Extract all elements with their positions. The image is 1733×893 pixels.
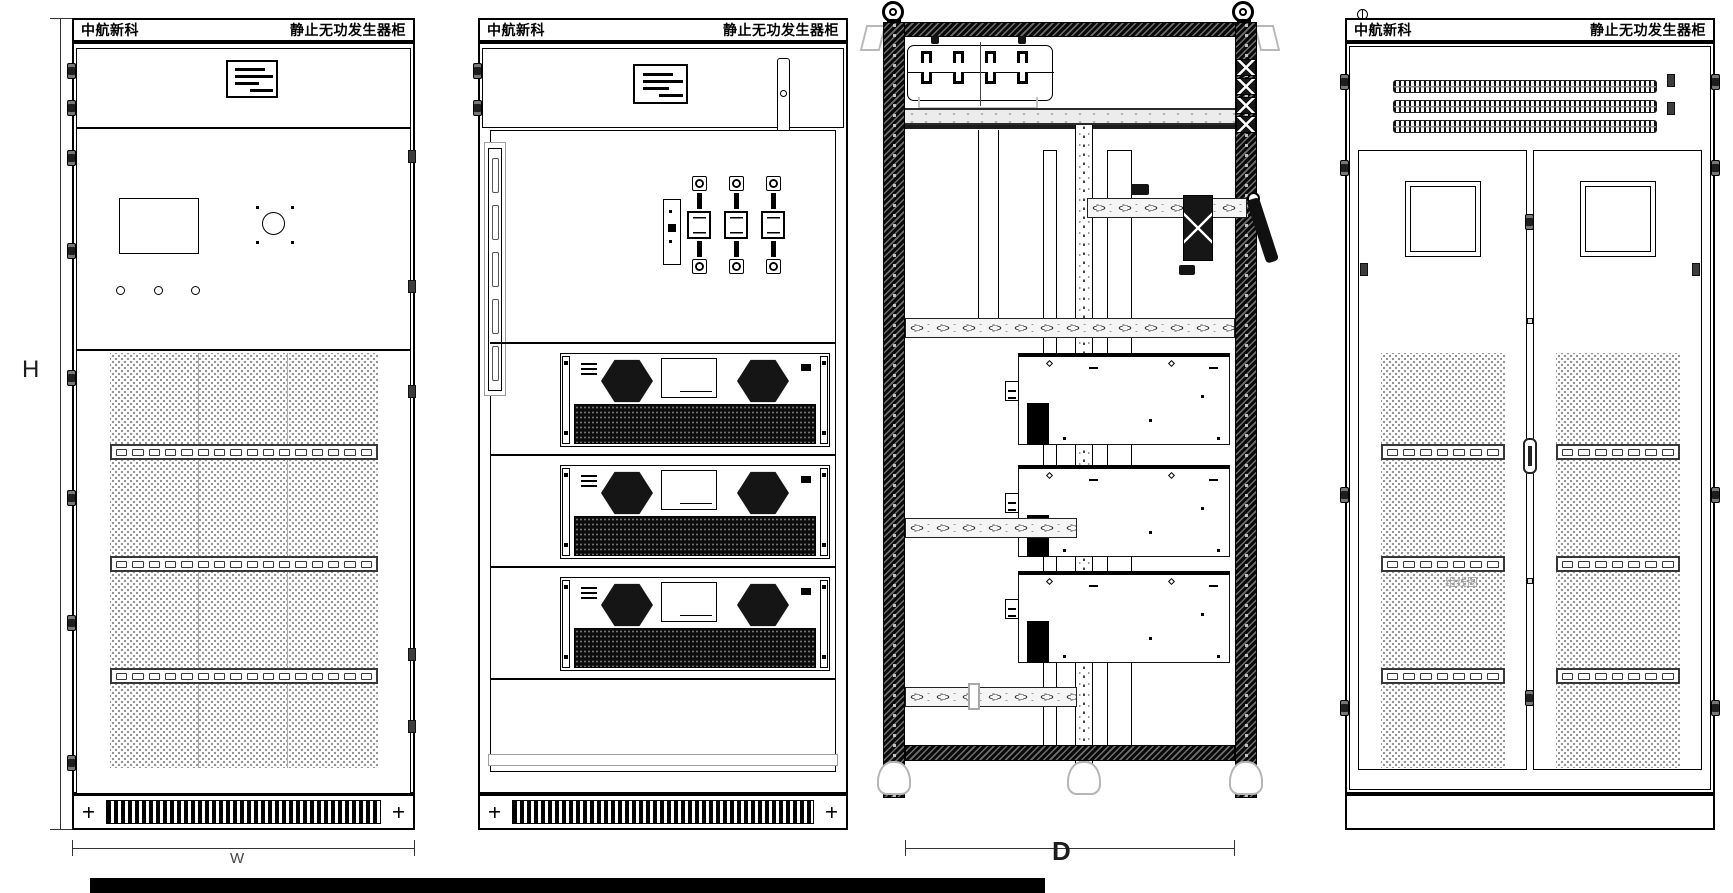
- perforated-panel: [1381, 460, 1505, 556]
- louver-slot: [1487, 561, 1499, 568]
- base-vent: [478, 794, 848, 830]
- louver-slot: [1470, 561, 1482, 568]
- view-rear: 中航新科 静止无功发生器柜: [1345, 18, 1715, 830]
- nameplate: [633, 64, 688, 104]
- breaker-pole: [722, 175, 750, 275]
- corner-gusset: [1254, 25, 1280, 51]
- louver-slot: [247, 449, 258, 456]
- view-front-open: 中航新科 静止无功发生器柜: [478, 18, 848, 830]
- busbar: [697, 241, 702, 257]
- perforated-panel: [1381, 684, 1505, 768]
- mark: [291, 206, 294, 209]
- breaker-terminal: [729, 176, 744, 191]
- center-hinge: [1525, 690, 1534, 706]
- side-module: [1018, 465, 1230, 557]
- side-module: [1018, 571, 1230, 663]
- mark: [1168, 578, 1175, 585]
- center-hinge: [1525, 214, 1534, 230]
- breaker-body: [724, 211, 748, 239]
- module-connector: [1005, 381, 1019, 401]
- door-hinge: [67, 755, 76, 771]
- louver-slot: [263, 561, 274, 568]
- louver-slot: [1387, 561, 1399, 568]
- label-line: [643, 73, 673, 76]
- mark: [1217, 437, 1220, 440]
- louver-slot: [328, 561, 339, 568]
- mark: [1089, 367, 1098, 369]
- watermark-note: 组线图: [1445, 574, 1478, 590]
- louver-slot: [1612, 561, 1624, 568]
- duct-slot: [492, 252, 499, 287]
- louver-slot: [132, 449, 143, 456]
- breaker-terminal: [766, 176, 781, 191]
- screw-cross-icon: [826, 807, 837, 818]
- breaker-terminal: [692, 176, 707, 191]
- louver-slot: [361, 673, 372, 680]
- louver-slot: [312, 561, 323, 568]
- mark: [1063, 437, 1066, 440]
- duct-slot: [492, 205, 499, 240]
- louver-strip: [1556, 556, 1680, 572]
- rear-door: [1533, 150, 1702, 770]
- louver-slot: [198, 673, 209, 680]
- panel-mark: [1667, 102, 1675, 115]
- door-hinge: [67, 490, 76, 506]
- support-line: [998, 130, 999, 320]
- company-label: 中航新科: [81, 20, 139, 40]
- duct-slot: [492, 299, 499, 334]
- mark: [1149, 531, 1152, 534]
- slotted-rail: [905, 518, 1077, 538]
- louver-strip: [1556, 444, 1680, 460]
- louver-slot: [1662, 673, 1674, 680]
- label-line: [643, 80, 683, 83]
- louver-slot: [279, 561, 290, 568]
- fan-icon: [737, 583, 789, 627]
- busbar: [697, 193, 702, 209]
- panel-seam: [198, 353, 199, 444]
- clamp-lower: [1017, 72, 1028, 84]
- company-label: 中航新科: [1354, 20, 1412, 40]
- mark: [801, 476, 811, 483]
- screw: [1018, 36, 1026, 44]
- door-hinge: [1340, 74, 1349, 90]
- door-lock-pin: [408, 150, 416, 163]
- louver-slot: [116, 561, 127, 568]
- louver-slot: [1628, 673, 1640, 680]
- louver-slot: [1470, 673, 1482, 680]
- panel-seam: [287, 684, 288, 768]
- indicator-light: [116, 286, 125, 295]
- louver-slot: [181, 561, 192, 568]
- louver-slot: [1645, 561, 1657, 568]
- louver-slot: [1403, 449, 1415, 456]
- vent-panel-stack: [110, 353, 378, 768]
- vent-grille: [106, 800, 381, 824]
- louver-slot: [344, 673, 355, 680]
- dim-label-width: W: [230, 850, 244, 867]
- busbar: [771, 241, 776, 257]
- louver-slot: [279, 449, 290, 456]
- clamp-upper: [921, 51, 932, 63]
- louver-slot: [1453, 449, 1465, 456]
- door-hinge: [67, 615, 76, 631]
- louver-slot: [1662, 449, 1674, 456]
- module-capacitor: [1027, 403, 1049, 445]
- fan-icon: [737, 359, 789, 403]
- drawing-canvas: 中航新科 静止无功发生器柜: [0, 0, 1733, 893]
- louver-strip: [110, 444, 378, 460]
- louver-slot: [1470, 449, 1482, 456]
- louver-slot: [230, 449, 241, 456]
- louver-slot: [263, 673, 274, 680]
- perforated-panel: [1381, 353, 1505, 444]
- mark: [1201, 613, 1204, 616]
- door-hinge: [1711, 700, 1720, 716]
- door-hinge: [1711, 487, 1720, 503]
- louver-slot: [1562, 561, 1574, 568]
- screw: [931, 36, 939, 44]
- louver-slot: [1645, 673, 1657, 680]
- louver-slot: [1562, 673, 1574, 680]
- indicator-light: [191, 286, 200, 295]
- mounting-rail: [562, 580, 570, 668]
- door-hinge: [67, 150, 76, 166]
- louver-slot: [165, 449, 176, 456]
- door-hinge: [1711, 74, 1720, 90]
- perforated-panel: [110, 353, 378, 444]
- clamp-cross-section: [1236, 78, 1256, 95]
- louver-slot: [1387, 449, 1399, 456]
- label-line: [659, 94, 683, 97]
- breaker-pole: [685, 175, 713, 275]
- louver-strip: [1381, 668, 1505, 684]
- perforated-panel: [1556, 353, 1680, 444]
- screw-cluster: [1131, 184, 1149, 195]
- switch-mechanism: [1183, 195, 1213, 261]
- door-hinge: [67, 100, 76, 116]
- door-hinge: [473, 63, 482, 79]
- louver-slot: [1403, 561, 1415, 568]
- rear-clamp-stack: [1236, 59, 1256, 133]
- door-hinge: [1340, 160, 1349, 176]
- mark: [1168, 472, 1175, 479]
- mark: [1089, 585, 1098, 587]
- busbar: [734, 241, 739, 257]
- product-label: 静止无功发生器柜: [1590, 20, 1706, 40]
- busbar: [734, 193, 739, 209]
- clamp-lower: [953, 72, 964, 84]
- clamp-upper: [1017, 51, 1028, 63]
- label-line: [235, 82, 259, 85]
- perforated-panel: [110, 684, 378, 768]
- rear-vent-strip: [1393, 80, 1657, 93]
- louver-slot: [1453, 561, 1465, 568]
- module-grille: [574, 404, 816, 444]
- svg-module: [560, 353, 830, 447]
- louver-slot: [1578, 449, 1590, 456]
- module-connector: [1005, 493, 1019, 513]
- louver-slot: [1628, 561, 1640, 568]
- louver-slot: [149, 561, 160, 568]
- louver-slot: [1612, 673, 1624, 680]
- panel-seam: [287, 572, 288, 668]
- louver-slot: [1420, 561, 1432, 568]
- louver-slot: [1645, 449, 1657, 456]
- mounting-rail: [820, 580, 828, 668]
- mark: [801, 364, 811, 371]
- rear-vent-strip: [1393, 120, 1657, 133]
- vent-panel-stack: [1381, 353, 1505, 768]
- panel-seam: [198, 684, 199, 768]
- module-capacitor: [1027, 621, 1049, 663]
- product-label: 静止无功发生器柜: [723, 20, 839, 40]
- module-label: [581, 586, 597, 599]
- clamp-lower: [921, 72, 932, 84]
- mark: [1089, 479, 1098, 481]
- door-lock-pin: [408, 280, 416, 293]
- mounting-rail: [820, 356, 828, 444]
- busbar: [771, 193, 776, 209]
- louver-slot: [1612, 449, 1624, 456]
- title-bar: 中航新科 静止无功发生器柜: [72, 18, 415, 42]
- mark: [669, 210, 672, 213]
- perforated-panel: [1556, 684, 1680, 768]
- module-label: [581, 362, 597, 375]
- door-lock-pin: [408, 648, 416, 661]
- hmi-display: [119, 198, 199, 254]
- vent-panel-stack: [1556, 353, 1680, 768]
- slotted-rail: [905, 687, 1077, 707]
- door-window: [1580, 181, 1656, 257]
- breaker-terminal: [766, 259, 781, 274]
- cable-duct: [488, 148, 502, 391]
- mounting-rail: [562, 468, 570, 556]
- louver-slot: [181, 449, 192, 456]
- top-plate: [905, 108, 1235, 125]
- busbar-clamp: [921, 51, 932, 84]
- frame-post: [883, 22, 905, 798]
- louver-slot: [1487, 449, 1499, 456]
- louver-slot: [149, 673, 160, 680]
- louver-slot: [295, 561, 306, 568]
- foot-bracket: [877, 761, 911, 795]
- panel-seam: [198, 572, 199, 668]
- door-hinge: [67, 370, 76, 386]
- louver-slot: [328, 449, 339, 456]
- louver-slot: [279, 673, 290, 680]
- view-side: [883, 3, 1257, 848]
- support-line: [978, 130, 979, 320]
- busbar-clamps: [921, 51, 1028, 84]
- louver-slot: [1437, 561, 1449, 568]
- module-stack: [560, 353, 830, 689]
- louver-slot: [247, 561, 258, 568]
- rail-bracket: [968, 683, 980, 710]
- louver-strip: [1381, 444, 1505, 460]
- door-hinge: [1711, 160, 1720, 176]
- dim-tick: [414, 840, 415, 856]
- louver-slot: [165, 673, 176, 680]
- door-mark: [1692, 263, 1700, 276]
- vent-grille: [512, 800, 814, 824]
- busbar-clamp: [1017, 51, 1028, 84]
- clamp-upper: [985, 51, 996, 63]
- svg-module: [560, 465, 830, 559]
- louver-slot: [295, 449, 306, 456]
- louver-slot: [214, 673, 225, 680]
- louver-slot: [1562, 449, 1574, 456]
- breaker-terminal: [729, 259, 744, 274]
- louver-strip: [1381, 556, 1505, 572]
- busbar-assembly: [907, 45, 1053, 101]
- louver-slot: [132, 673, 143, 680]
- module-display: [661, 470, 717, 510]
- module-display: [661, 358, 717, 398]
- center-lock-handle: [1523, 438, 1537, 474]
- louver-slot: [1437, 449, 1449, 456]
- panel-seam: [287, 353, 288, 444]
- dim-tick: [905, 840, 906, 856]
- mark: [1201, 507, 1204, 510]
- door-hinge: [67, 243, 76, 259]
- mark: [1149, 419, 1152, 422]
- louver-slot: [1595, 673, 1607, 680]
- louver-slot: [1387, 673, 1399, 680]
- louver-slot: [1628, 449, 1640, 456]
- mark: [291, 241, 294, 244]
- mark: [1209, 367, 1218, 369]
- mark: [1046, 578, 1053, 585]
- bottom-border-bar: [90, 878, 1045, 893]
- door-hinge: [473, 100, 482, 116]
- louver-slot: [116, 673, 127, 680]
- louver-slot: [344, 561, 355, 568]
- louver-slot: [361, 449, 372, 456]
- shelf-line: [490, 342, 836, 344]
- mark: [1217, 549, 1220, 552]
- frame-post: [1235, 22, 1257, 798]
- circuit-breaker: [663, 175, 780, 288]
- product-label: 静止无功发生器柜: [290, 20, 406, 40]
- mark: [668, 224, 676, 232]
- mark: [256, 206, 259, 209]
- louver-strip: [1556, 668, 1680, 684]
- fan-icon: [601, 471, 653, 515]
- busbar-clamp: [985, 51, 996, 84]
- mark: [1217, 655, 1220, 658]
- dim-tick: [50, 18, 72, 19]
- mark: [1046, 472, 1053, 479]
- module-grille: [574, 628, 816, 668]
- louver-slot: [344, 449, 355, 456]
- mark: [1527, 318, 1533, 324]
- module-label: [581, 474, 597, 487]
- dim-tick: [72, 840, 73, 856]
- fan-icon: [737, 471, 789, 515]
- mark: [1046, 360, 1053, 367]
- louver-slot: [181, 673, 192, 680]
- louver-slot: [165, 561, 176, 568]
- switch-rail: [1087, 198, 1247, 218]
- louver-slot: [214, 449, 225, 456]
- side-module: [1018, 353, 1230, 445]
- foot-bracket: [1067, 761, 1101, 795]
- mark: [1168, 360, 1175, 367]
- mounting-rail: [562, 356, 570, 444]
- door-lock-pin: [408, 720, 416, 733]
- dim-tick: [1234, 840, 1235, 856]
- louver-slot: [1420, 449, 1432, 456]
- louver-slot: [1662, 561, 1674, 568]
- bottom-frame-rail: [905, 745, 1235, 761]
- top-frame-rail: [894, 22, 1246, 37]
- clamp-cross-section: [1236, 59, 1256, 76]
- dim-tick: [50, 829, 72, 830]
- bottom-shelf: [488, 754, 838, 766]
- door-lock-pin: [408, 385, 416, 398]
- louver-slot: [198, 449, 209, 456]
- louver-slot: [295, 673, 306, 680]
- label-line: [250, 89, 273, 92]
- mark: [1149, 637, 1152, 640]
- rear-vent-strip: [1393, 100, 1657, 113]
- company-label: 中航新科: [487, 20, 545, 40]
- nameplate: [226, 60, 278, 98]
- screw-cross-icon: [489, 807, 500, 818]
- louver-slot: [1453, 673, 1465, 680]
- perforated-panel: [1556, 460, 1680, 556]
- dim-label-height: H: [22, 356, 39, 384]
- louver-slot: [361, 561, 372, 568]
- mark: [669, 240, 672, 243]
- louver-strip: [110, 668, 378, 684]
- louver-slot: [1578, 561, 1590, 568]
- louver-slot: [328, 673, 339, 680]
- dim-line-height: [60, 18, 61, 830]
- louver-slot: [1595, 561, 1607, 568]
- title-bar: 中航新科 静止无功发生器柜: [1345, 18, 1715, 42]
- panel-mark: [1667, 74, 1675, 87]
- mark: [1527, 578, 1533, 584]
- door-hinge: [1340, 487, 1349, 503]
- mark: [1209, 585, 1218, 587]
- door-mark: [1360, 263, 1368, 276]
- perforated-panel: [110, 572, 378, 668]
- clamp-cross-section: [1236, 116, 1256, 133]
- breaker-body: [761, 211, 785, 239]
- mark: [1209, 479, 1218, 481]
- clamp-cross-section: [1236, 97, 1256, 114]
- label-line: [643, 87, 669, 90]
- module-grille: [574, 516, 816, 556]
- foot-bracket: [1229, 761, 1263, 795]
- emergency-button: [262, 212, 285, 235]
- svg-module: [560, 577, 830, 671]
- louver-slot: [149, 449, 160, 456]
- module-connector: [1005, 599, 1019, 619]
- screw-cross-icon: [393, 807, 404, 818]
- perforated-panel: [1381, 572, 1505, 668]
- breaker-poles: [685, 175, 787, 275]
- indicator-light: [154, 286, 163, 295]
- module-stack-side: [1018, 353, 1230, 663]
- door-hinge: [67, 63, 76, 79]
- duct-slot: [492, 158, 499, 193]
- louver-slot: [312, 449, 323, 456]
- rear-vent-strips: [1393, 80, 1657, 133]
- louver-slot: [230, 673, 241, 680]
